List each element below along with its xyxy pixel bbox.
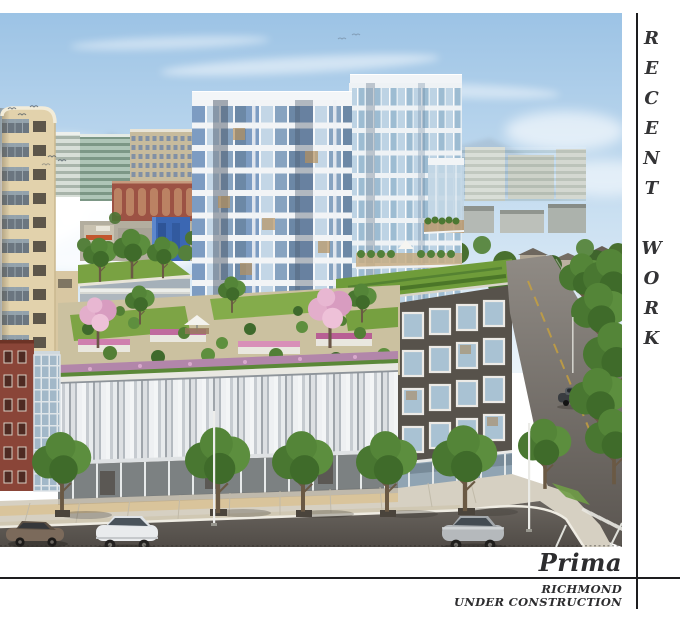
project-name: Prima: [539, 548, 622, 577]
horizontal-divider: [0, 577, 680, 579]
recent-work-label: RECENT WORK: [641, 28, 662, 348]
project-credits: RICHMOND UNDER CONSTRUCTION: [454, 583, 622, 609]
tower-left-volume: [192, 83, 352, 318]
vertical-divider: [636, 13, 638, 609]
prima-rendering-image: [0, 13, 622, 547]
project-status: UNDER CONSTRUCTION: [454, 596, 622, 609]
project-rendering-figure: [0, 13, 622, 547]
portfolio-page: RECENT WORK Prima RICHMOND UNDER CONSTRU…: [0, 0, 680, 624]
cream-tower: [0, 108, 55, 363]
